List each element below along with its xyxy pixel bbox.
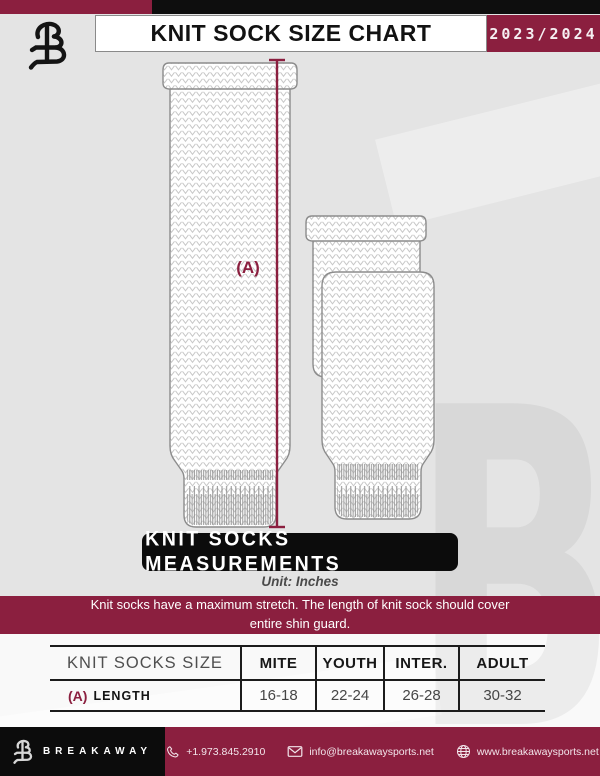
phone-number: +1.973.845.2910 [186,746,265,758]
row-name-length: LENGTH [93,689,150,703]
email-contact: info@breakawaysports.net [287,745,433,758]
length-adult: 30-32 [458,679,545,710]
length-youth: 22-24 [315,679,383,710]
table-header-size: KNIT SOCKS SIZE [50,647,240,679]
measurement-label-a: (A) [236,258,260,277]
table-header-youth: YOUTH [315,647,383,679]
knit-sock-size-chart-page: B KNIT SOCK SIZE CHART 2023/2024 [0,0,600,776]
footer-contacts: +1.973.845.2910 info@breakawaysports.net [165,727,600,776]
unit-label: Unit: Inches [0,574,600,589]
phone-contact: +1.973.845.2910 [166,745,265,759]
phone-icon [166,745,180,759]
globe-icon [456,744,471,759]
website-url: www.breakawaysports.net [477,746,599,758]
measurements-banner-label: KNIT SOCKS MEASUREMENTS [145,527,455,577]
stretch-note-banner: Knit socks have a maximum stretch. The l… [0,596,600,634]
note-line-2: entire shin guard. [0,615,600,634]
footer-brand: BREAKAWAY [0,727,165,776]
table-header-adult: ADULT [458,647,545,679]
length-inter: 26-28 [383,679,458,710]
email-icon [287,745,303,758]
sock-medium [322,272,434,519]
website-contact: www.breakawaysports.net [456,744,599,759]
breakaway-footer-logo [13,739,35,765]
measurements-banner: KNIT SOCKS MEASUREMENTS [142,533,458,571]
note-line-1: Knit socks have a maximum stretch. The l… [0,596,600,615]
table-header-mite: MITE [240,647,315,679]
sock-diagram: (A) [0,0,600,545]
row-key-a: (A) [68,688,87,704]
email-address: info@breakawaysports.net [309,746,433,758]
brand-name: BREAKAWAY [43,746,152,757]
size-table: KNIT SOCKS SIZE MITE YOUTH INTER. ADULT … [50,645,545,712]
footer: BREAKAWAY +1.973.845.2910 info@breakaway… [0,727,600,776]
length-mite: 16-18 [240,679,315,710]
table-header-inter: INTER. [383,647,458,679]
table-row-length-label: (A) LENGTH [50,679,240,710]
